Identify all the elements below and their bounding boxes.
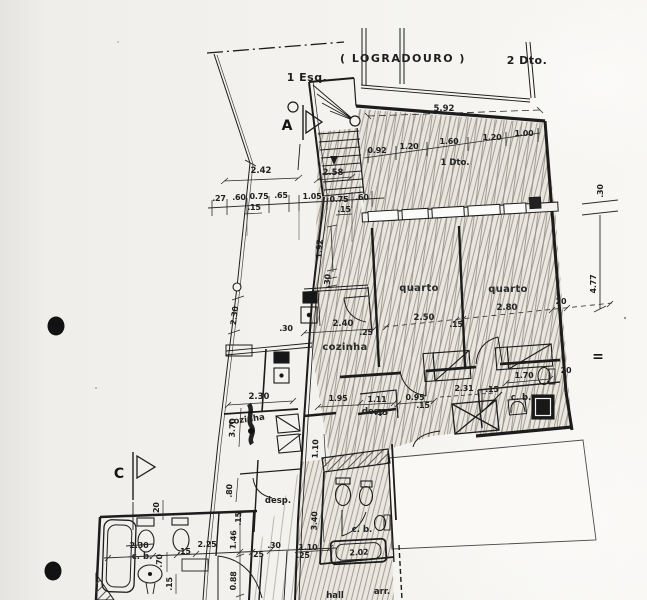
window <box>504 203 527 214</box>
dim-text: 1.10 <box>311 439 321 459</box>
window <box>468 204 501 216</box>
dim-text: 1.70 <box>515 371 535 380</box>
room-label-hall: hall <box>326 591 344 600</box>
section-c-letter: C <box>114 466 124 482</box>
room-label-cozinha: cozinha <box>322 342 367 353</box>
binder-hole <box>48 317 65 336</box>
dim-text: 2.25 <box>198 540 218 549</box>
dim-text: 1.92 <box>315 239 325 258</box>
dim-text: .65 <box>274 191 288 200</box>
binder-hole <box>45 562 62 581</box>
dim-text: .30 <box>323 273 333 288</box>
dim-text: 1.95 <box>329 394 349 403</box>
dim-text: .25 <box>296 551 310 560</box>
room-label-arr: arr. <box>374 587 390 597</box>
dim-text: .70 <box>155 553 164 568</box>
dim-text: 2.31 <box>455 384 475 393</box>
dim-text: .30 <box>267 541 281 550</box>
scanned-floor-plan-page: ( LOGRADOURO ) 2 Dto. 1 Esq. 1 Dto. A C … <box>0 0 647 600</box>
dim-text: .15 <box>247 203 261 212</box>
dim-text: .25 <box>359 328 373 337</box>
pillar <box>529 197 541 209</box>
unit-2dto-label: 2 Dto. <box>507 54 548 67</box>
dim-text: .25 <box>250 550 264 559</box>
section-a-letter: A <box>282 118 293 134</box>
dim-text: .60 <box>232 193 246 202</box>
dim-text: .15 <box>337 205 351 214</box>
dim-text: 2.50 <box>414 313 435 323</box>
dim-text: 0.88 <box>229 571 239 591</box>
dim-text: 0.92 <box>368 146 387 155</box>
dim-text: .15 <box>177 547 191 556</box>
dim-text: .80 <box>225 483 234 498</box>
dim-text: 1.05 <box>303 192 323 201</box>
dim-text: 5.92 <box>434 104 455 114</box>
room-label-quarto-right: quarto <box>488 284 527 295</box>
dim-text: .20 <box>152 502 161 516</box>
dim-text: 1.46 <box>229 530 239 550</box>
dim-text: 2.30 <box>249 392 270 402</box>
stair-newel <box>350 116 360 126</box>
dim-text: .27 <box>212 194 226 203</box>
dim-text: 0.75 <box>250 192 270 201</box>
dim-text: .15 <box>234 511 243 526</box>
dim-text: 1.20 <box>400 142 420 151</box>
dim-text: 1.00 <box>515 129 535 138</box>
room-label-quarto-left: quarto <box>399 283 438 294</box>
dim-text: 20 <box>561 366 572 375</box>
dim-text: 20 <box>556 297 567 306</box>
dim-text: .15 <box>165 576 174 591</box>
dim-text: 2.40 <box>333 319 354 329</box>
dim-text: .15 <box>374 408 388 417</box>
dim-text: 1.60 <box>440 137 460 146</box>
window <box>368 210 399 222</box>
room-label-cb-right: c. b. <box>511 393 532 403</box>
dim-text-bathtub: 2.02 <box>349 548 368 558</box>
room-label-cb-left: c. b. <box>132 552 153 562</box>
dim-text: .30 <box>596 184 605 198</box>
floor-plan-drawing: ( LOGRADOURO ) 2 Dto. 1 Esq. 1 Dto. A C … <box>0 0 647 600</box>
window <box>432 206 465 218</box>
dim-text: .15 <box>485 385 499 394</box>
equals-mark: = <box>592 349 604 365</box>
shower-icon <box>532 395 554 419</box>
dim-text: 1.11 <box>368 395 388 404</box>
dim-text: 3.70 <box>228 418 238 438</box>
dim-text: 4.77 <box>589 275 598 294</box>
white-patch-overlay <box>389 440 596 549</box>
dim-text: .60 <box>355 193 369 202</box>
dim-text: 2.30 <box>130 541 150 550</box>
dim-text: 2.58 <box>323 168 344 178</box>
dim-text: .30 <box>279 324 293 333</box>
room-label-cb-center: c. b. <box>352 525 373 535</box>
window <box>402 208 429 219</box>
dim-text: .15 <box>416 401 430 410</box>
dim-text: 3.40 <box>310 511 320 531</box>
dim-text: 2.42 <box>251 166 272 176</box>
dim-text: .15 <box>449 320 463 329</box>
unit-1dto-label: 1 Dto. <box>440 158 469 168</box>
logradouro-label: ( LOGRADOURO ) <box>340 52 466 65</box>
dim-text: 2.80 <box>497 303 518 313</box>
unit-1esq-label: 1 Esq. <box>287 71 328 84</box>
dim-text: 1.20 <box>483 133 503 142</box>
room-label-desp-esq: desp. <box>265 496 291 506</box>
dim-text: 0.75 <box>330 195 350 204</box>
